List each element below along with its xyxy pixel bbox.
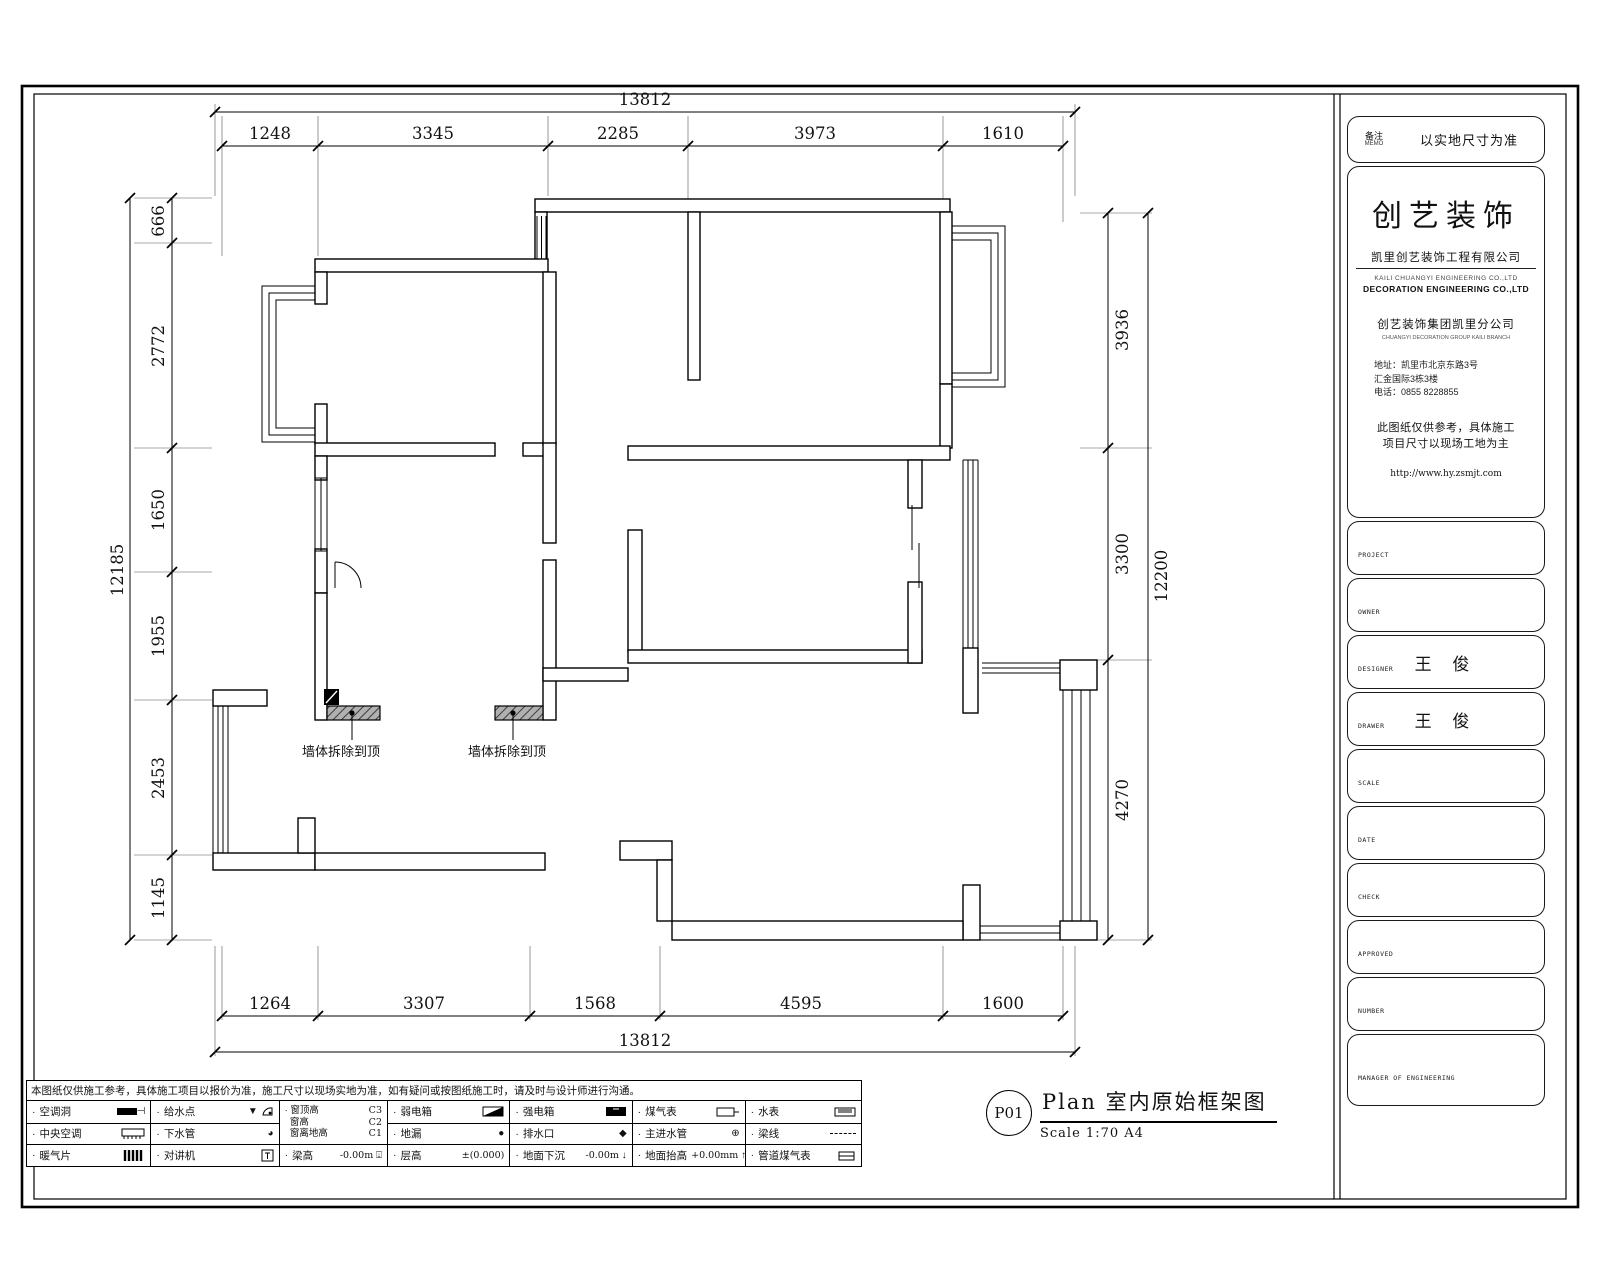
gas-meter-icon: [716, 1106, 740, 1117]
field-project: PROJECT: [1347, 521, 1545, 575]
dim-right-1: 3936: [1113, 309, 1132, 351]
dim-top-2: 3345: [412, 124, 454, 143]
drawing-title: P01 Plan 室内原始框架图 Scale 1:70 A4: [986, 1086, 1277, 1141]
window-left-mid: [315, 478, 327, 551]
dim-top-5: 1610: [982, 124, 1024, 143]
dim-left-6: 1145: [149, 877, 168, 919]
dim-top-1: 1248: [249, 124, 291, 143]
window-right-mid: [982, 663, 1060, 673]
field-date: DATE: [1347, 806, 1545, 860]
central-ac-icon: [121, 1128, 145, 1140]
field-owner: OWNER: [1347, 578, 1545, 632]
field-designer: DESIGNER 王 俊: [1347, 635, 1545, 689]
radiator-icon: [123, 1149, 145, 1162]
company-name-cn: 凯里创艺装饰工程有限公司: [1356, 249, 1536, 269]
bay-window-right: [1063, 690, 1090, 921]
floor-sink-icon: -0.00m ↓: [586, 1150, 627, 1161]
company-name-en1: KAILI CHUANGYI ENGINEERING CO.,LTD: [1356, 275, 1536, 282]
sheet-border: [22, 86, 1578, 1207]
memo-label: 备注 MEMO: [1348, 131, 1394, 149]
floor-plan-walls: [213, 199, 1097, 940]
dim-bottom-2: 3307: [403, 994, 445, 1013]
demolished-wall-2: [495, 706, 543, 720]
drawing-sheet: 13812 1248 3345 2285 3973 1610 1264 3307…: [0, 0, 1600, 1280]
dim-bottom-4: 4595: [780, 994, 822, 1013]
memo-box: 备注 MEMO 以实地尺寸为准: [1347, 116, 1545, 163]
dim-top-4: 3973: [794, 124, 836, 143]
legend-col-6: ·煤气表 ·主进水管 ⊕ ·地面抬高 +0.00mm ↑: [633, 1101, 746, 1166]
door-arc-kitchen: [335, 562, 361, 588]
field-number: NUMBER: [1347, 977, 1545, 1031]
dim-right-total: 12200: [1152, 550, 1171, 603]
legend-col-5: ·强电箱 ·排水口 ◆ ·地面下沉 -0.00m ↓: [510, 1101, 632, 1166]
beam-height-icon: -0.00m ⍗: [340, 1150, 382, 1161]
window-shaft-right: [963, 460, 978, 648]
legend-col-4: ·弱电箱 ·地漏 ● ·层高 ±(0.000): [388, 1101, 510, 1166]
witness-lines: [134, 104, 1152, 1056]
dim-bottom-total: 13812: [619, 1031, 672, 1050]
dim-left-2: 2772: [149, 325, 168, 367]
legend-col-3: · 窗顶高C3 窗高C2 窗离地高C1 ·梁高 -0.00m ⍗: [280, 1101, 388, 1166]
dim-left-total: 12185: [108, 544, 127, 597]
field-check: CHECK: [1347, 863, 1545, 917]
dim-left-4: 1955: [149, 615, 168, 657]
demo-label-2: 墙体拆除到顶: [468, 745, 546, 760]
company-box: 创艺装饰 凯里创艺装饰工程有限公司 KAILI CHUANGYI ENGINEE…: [1347, 166, 1545, 518]
window-heights-cell: · 窗顶高C3 窗高C2 窗离地高C1: [280, 1101, 387, 1144]
company-name-en2: DECORATION ENGINEERING CO.,LTD: [1356, 284, 1536, 294]
company-branch: 创艺装饰集团凯里分公司: [1356, 316, 1536, 332]
dim-left-1: 666: [149, 205, 168, 237]
drain-outlet-icon: ◆: [619, 1128, 627, 1139]
dim-right-3: 4270: [1113, 779, 1132, 821]
company-note: 此图纸仅供参考，具体施工 项目尺寸以现场工地为主: [1356, 420, 1536, 453]
company-address: 地址：凯里市北京东路3号 汇金国际3栋3楼 电话：0855 8228855: [1356, 359, 1536, 400]
field-scale: SCALE: [1347, 749, 1545, 803]
company-url: http://www.hy.zsmjt.com: [1356, 469, 1536, 479]
strong-current-box-icon: [605, 1106, 627, 1117]
floor-raise-icon: +0.00mm ↑: [691, 1150, 746, 1161]
flue-block: [324, 689, 339, 705]
title-panel: 备注 MEMO 以实地尺寸为准 创艺装饰 凯里创艺装饰工程有限公司 KAILI …: [1347, 116, 1545, 1109]
doors: [335, 505, 919, 588]
sliding-door: [912, 505, 919, 588]
drawing-scale: Scale 1:70 A4: [1040, 1126, 1277, 1141]
field-approved: APPROVED: [1347, 920, 1545, 974]
window-bottom-right: [980, 926, 1060, 940]
window-balcony-left: [213, 706, 228, 853]
demo-label-1: 墙体拆除到顶: [302, 745, 380, 760]
bay-window-left: [262, 286, 315, 442]
main-water-pipe-icon: ⊕: [731, 1128, 739, 1139]
dim-bottom-5: 1600: [982, 994, 1024, 1013]
beam-line-icon: [830, 1133, 856, 1134]
drawing-name: Plan 室内原始框架图: [1040, 1086, 1277, 1123]
page-number-badge: P01: [986, 1090, 1032, 1136]
floor-height-icon: ±(0.000): [462, 1150, 505, 1161]
water-meter-icon: [834, 1106, 856, 1117]
windows: [213, 216, 1090, 940]
dim-top-3: 2285: [597, 124, 639, 143]
company-branch-en: CHUANGYI DECORATION GROUP KAILI BRANCH: [1356, 335, 1536, 341]
drain-pipe-icon: ◕: [268, 1128, 274, 1139]
dim-left-3: 1650: [149, 489, 168, 531]
ac-hole-icon: ⊣: [117, 1106, 146, 1117]
field-manager: MANAGER OF ENGINEERING: [1347, 1034, 1545, 1106]
bay-window-top-right: [952, 226, 1005, 387]
intercom-icon: [261, 1149, 274, 1162]
weak-current-box-icon: [482, 1106, 504, 1117]
water-point-icon: ▼: [248, 1106, 274, 1117]
legend-col-7: ·水表 ·梁线 ·管道煤气表: [746, 1101, 861, 1166]
legend-note: 本图纸仅供施工参考，具体施工项目以报价为准，施工尺寸以现场实地为准，如有疑问或按…: [27, 1081, 861, 1101]
dim-left-5: 2453: [149, 757, 168, 799]
legend-col-1: ·空调洞 ⊣ ·中央空调 ·暖气片: [27, 1101, 151, 1166]
company-brand: 创艺装饰: [1356, 191, 1536, 235]
floor-drain-icon: ●: [498, 1128, 504, 1139]
dim-right-2: 3300: [1113, 533, 1132, 575]
dim-top-total: 13812: [619, 90, 672, 109]
dim-bottom-3: 1568: [574, 994, 616, 1013]
legend-table: 本图纸仅供施工参考，具体施工项目以报价为准，施工尺寸以现场实地为准，如有疑问或按…: [26, 1080, 862, 1167]
legend-col-2: ·给水点 ▼ ·下水管 ◕ ·对讲机: [151, 1101, 279, 1166]
pipe-gas-meter-icon: [838, 1150, 856, 1161]
field-drawer: DRAWER 王 俊: [1347, 692, 1545, 746]
memo-value: 以实地尺寸为准: [1394, 130, 1544, 149]
dim-bottom-1: 1264: [249, 994, 291, 1013]
